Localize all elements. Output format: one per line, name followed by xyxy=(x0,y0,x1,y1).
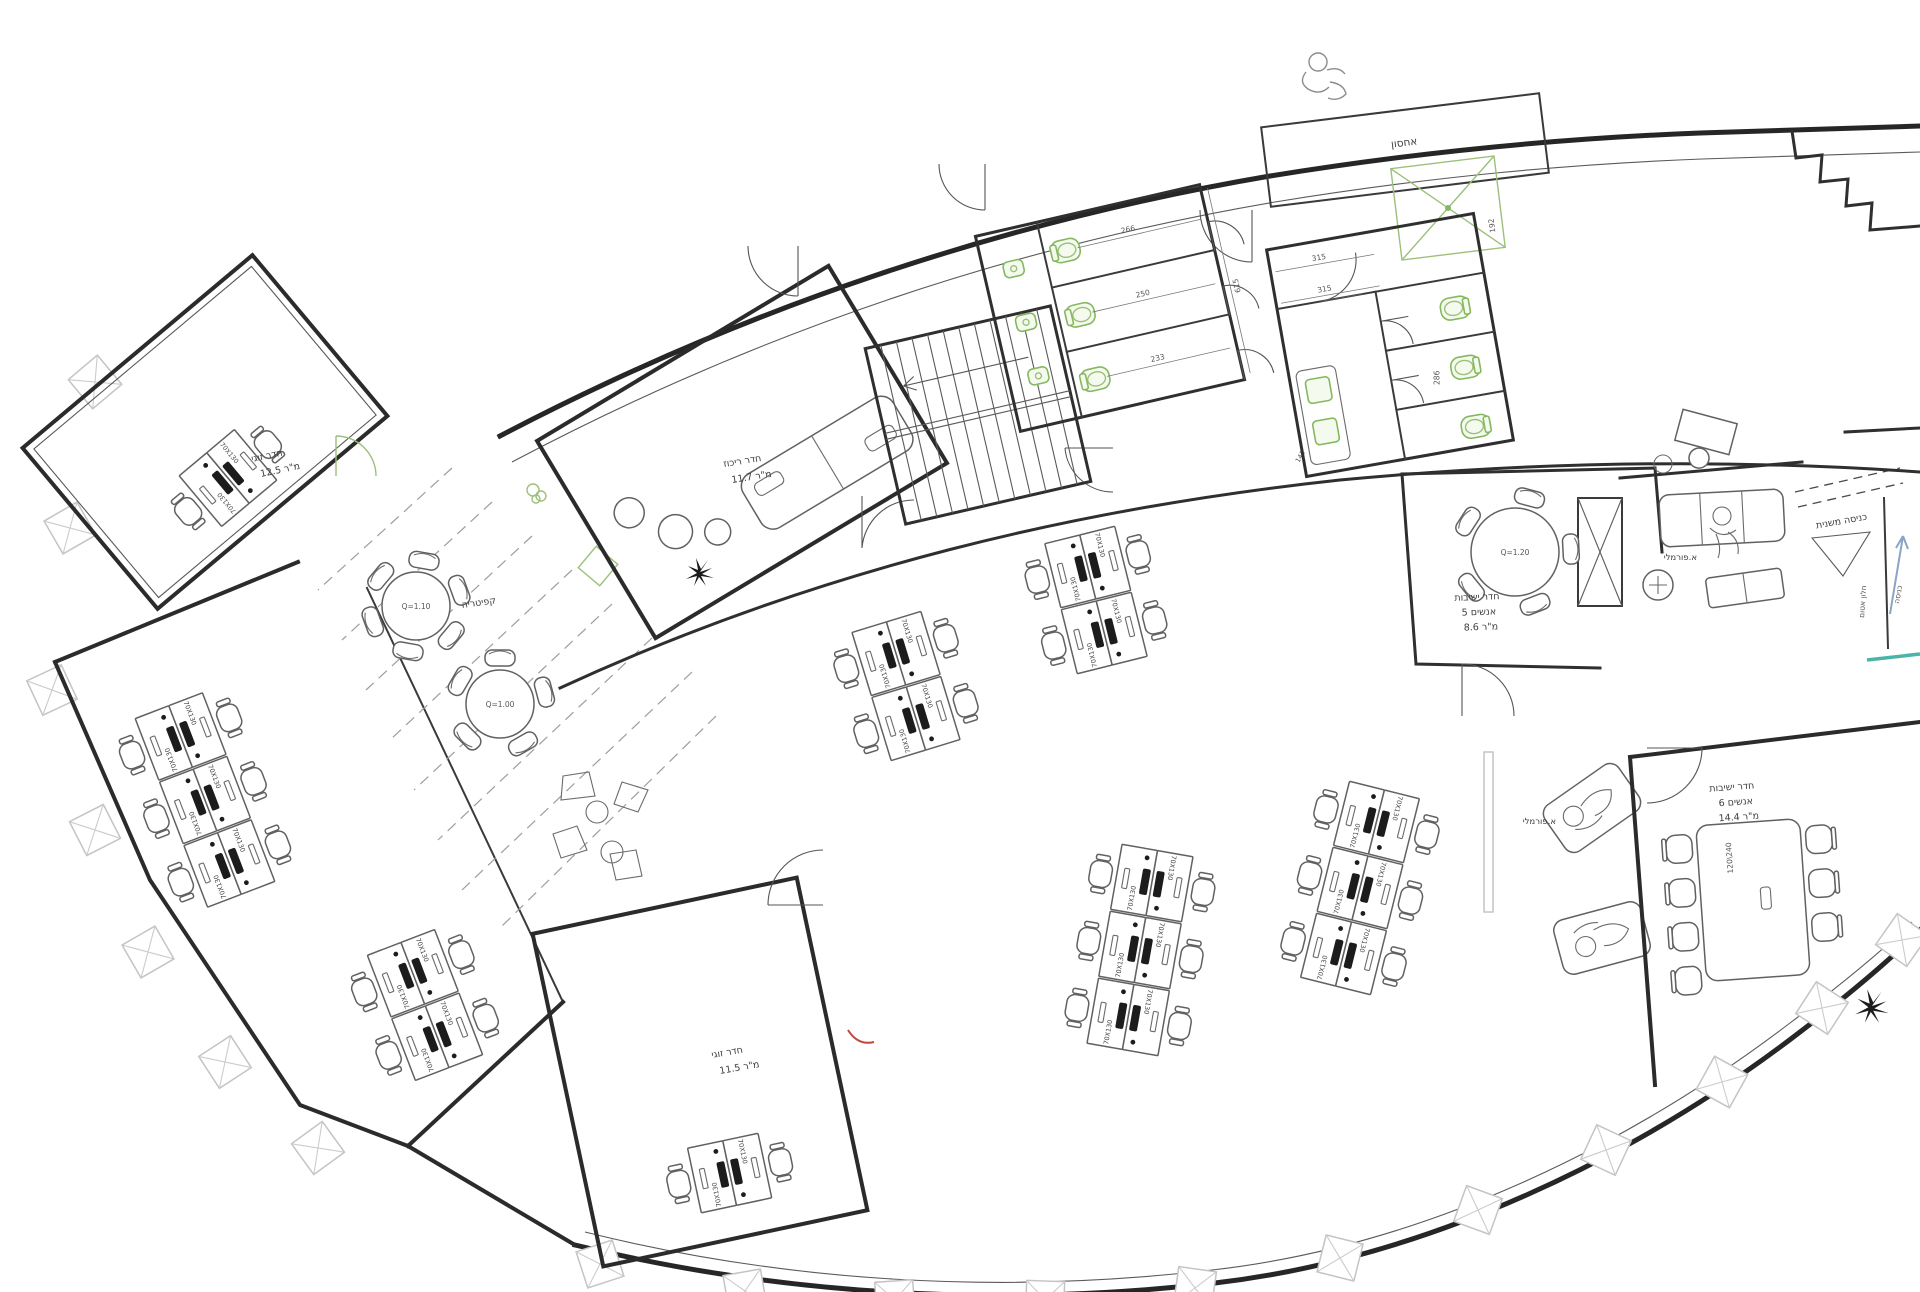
door-dim: 315 xyxy=(1311,252,1327,263)
entrance-triangle xyxy=(1812,532,1870,576)
room-capacity: 6 אנשים xyxy=(1718,796,1753,809)
green-shaft: 192 xyxy=(1391,156,1505,260)
room-double-bottom: חדר זוגי 11.5 מ"ר xyxy=(533,850,868,1266)
open-space-desks xyxy=(826,520,1445,1061)
storage-room: אחסון 192 xyxy=(1261,93,1549,260)
lobby-area: א.פורמלי xyxy=(1620,409,1802,608)
room-area: 8.6 מ"ר xyxy=(1464,621,1499,633)
entry-arrow-label: כניסה xyxy=(1892,585,1904,605)
door-dim: 315 xyxy=(1317,283,1333,294)
sofa-3-seat xyxy=(1659,489,1786,547)
stall-dim: 286 xyxy=(1433,370,1442,385)
glass-line xyxy=(1867,654,1920,660)
toilet-block-2: 315 315 286 xyxy=(1267,214,1514,477)
sealed-window-label: חלון אטום xyxy=(1857,585,1868,618)
room-capacity: 5 אנשים xyxy=(1462,606,1497,618)
stall-dim: 250 xyxy=(1135,288,1151,300)
toilet-block-1: 266 250 233 615 xyxy=(975,178,1273,431)
floor-plan-drawing: 70X130 xyxy=(0,0,1920,1292)
room-label: חדר ריכוז xyxy=(723,453,762,470)
exterior-walls xyxy=(408,126,1920,1292)
plant-icon xyxy=(527,484,546,503)
block-depth-dim: 615 xyxy=(1231,278,1243,294)
room-label: חדר ישיבות xyxy=(1454,591,1499,604)
room-label: חדר זוגי xyxy=(711,1045,744,1061)
red-mark xyxy=(848,1030,874,1043)
stall-dim: 266 xyxy=(1120,223,1136,235)
coffee-table xyxy=(1705,568,1784,608)
room-area: 11.5 מ"ר xyxy=(719,1059,761,1077)
elevator-shaft xyxy=(1578,498,1622,606)
stall-dim: 233 xyxy=(1150,352,1166,364)
cafeteria-table-2: Q=1.00 xyxy=(446,650,556,758)
meeting-room-6: 120\240 חדר ישיבות 6 אנשים 14.4 מ"ר xyxy=(1630,722,1920,1085)
lounge-chairs xyxy=(553,772,648,880)
sketch-figure xyxy=(1302,53,1346,99)
informal-label: א.פורמלי xyxy=(1664,553,1697,563)
table-diameter: Q=1.20 xyxy=(1501,548,1530,557)
room-area: 12.5 מ"ר xyxy=(259,461,301,480)
conference-table: 120\240 xyxy=(1661,816,1846,996)
cafeteria-table-1: Q=1.10 xyxy=(360,550,472,662)
partition-strip xyxy=(1484,752,1493,912)
informal-label: א.פורמלי xyxy=(1523,817,1556,827)
table-diameter: Q=1.00 xyxy=(486,700,515,709)
storage-label: אחסון xyxy=(1390,135,1418,150)
table-diameter: Q=1.10 xyxy=(402,602,431,611)
room-label: חדר זוגי xyxy=(250,448,283,465)
lounge-1 xyxy=(1539,759,1645,856)
lounge-2 xyxy=(1551,899,1652,976)
floor-plan-page: 70X130 xyxy=(0,0,1920,1292)
entrance-label: כניסה משנית xyxy=(1815,512,1868,532)
shaft-dim: 192 xyxy=(1487,218,1498,234)
room-double-top: חדר זוגי 12.5 מ"ר xyxy=(23,255,388,609)
room-label: חדר ישיבות xyxy=(1709,780,1755,794)
